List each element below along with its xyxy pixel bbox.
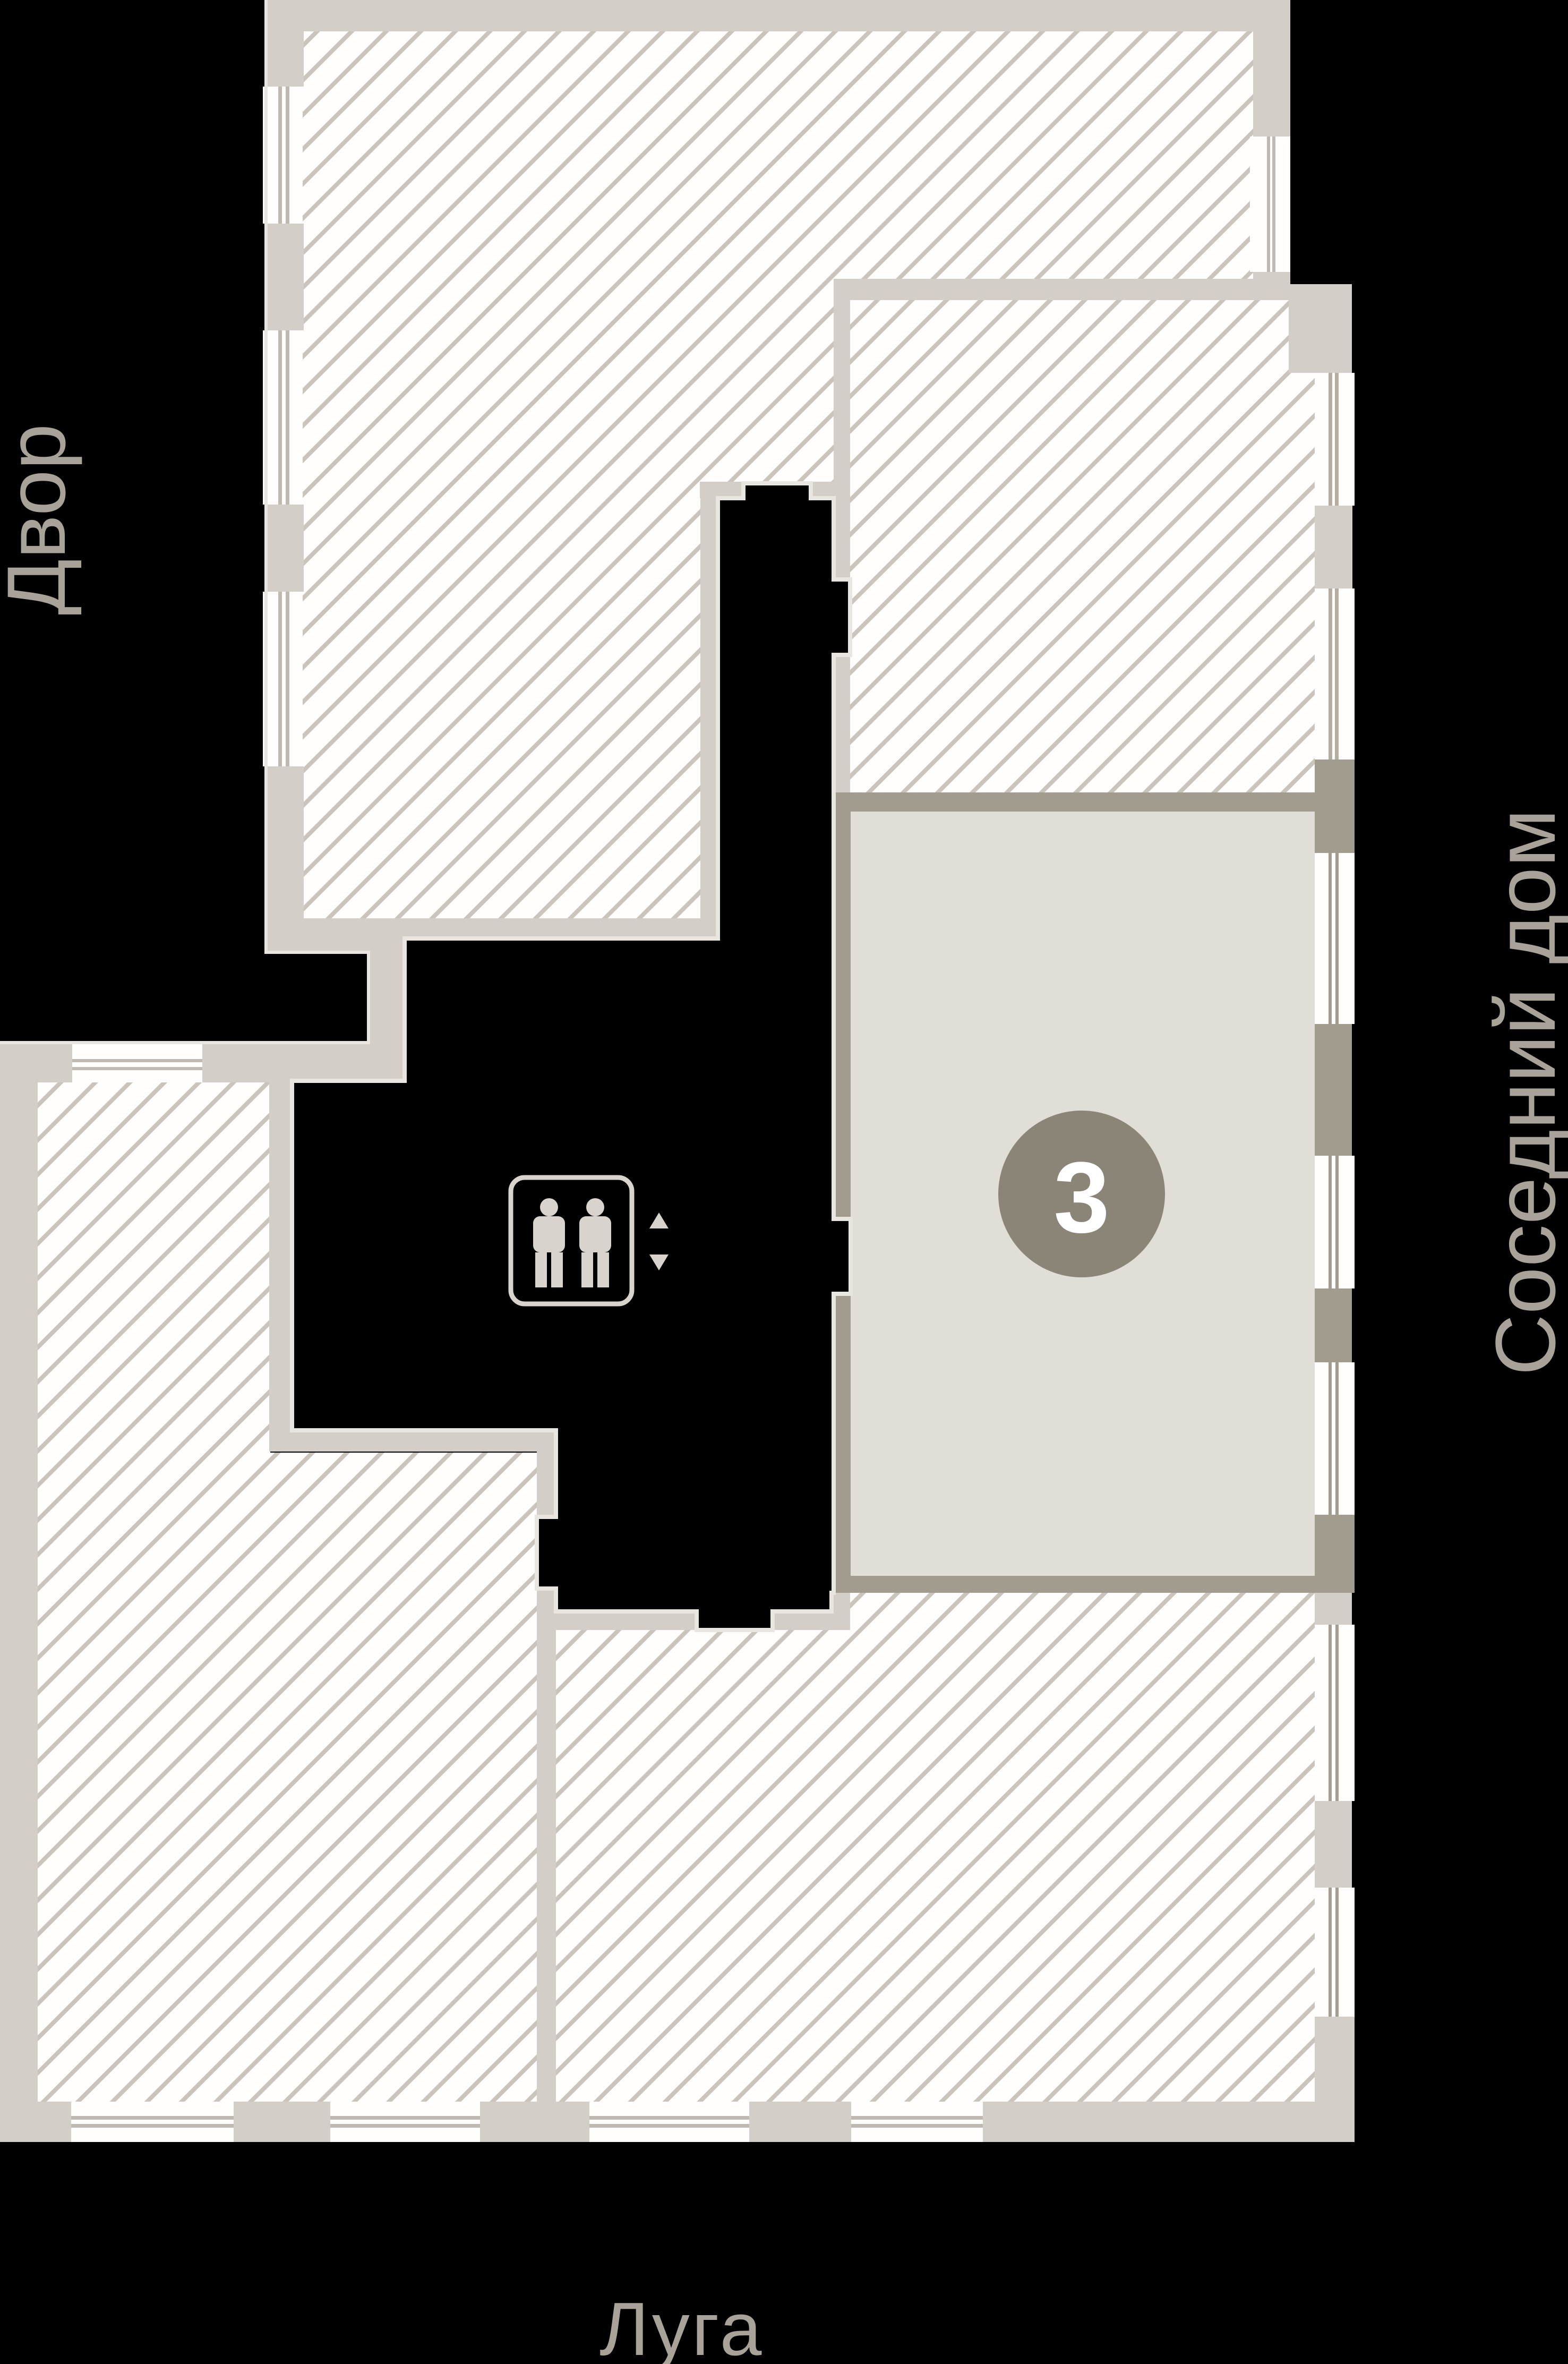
svg-text:3: 3 [1053, 1141, 1110, 1254]
svg-text:Соседний дом: Соседний дом [1478, 809, 1568, 1376]
svg-text:Луга: Луга [599, 2287, 764, 2364]
svg-text:Двор: Двор [0, 424, 83, 615]
